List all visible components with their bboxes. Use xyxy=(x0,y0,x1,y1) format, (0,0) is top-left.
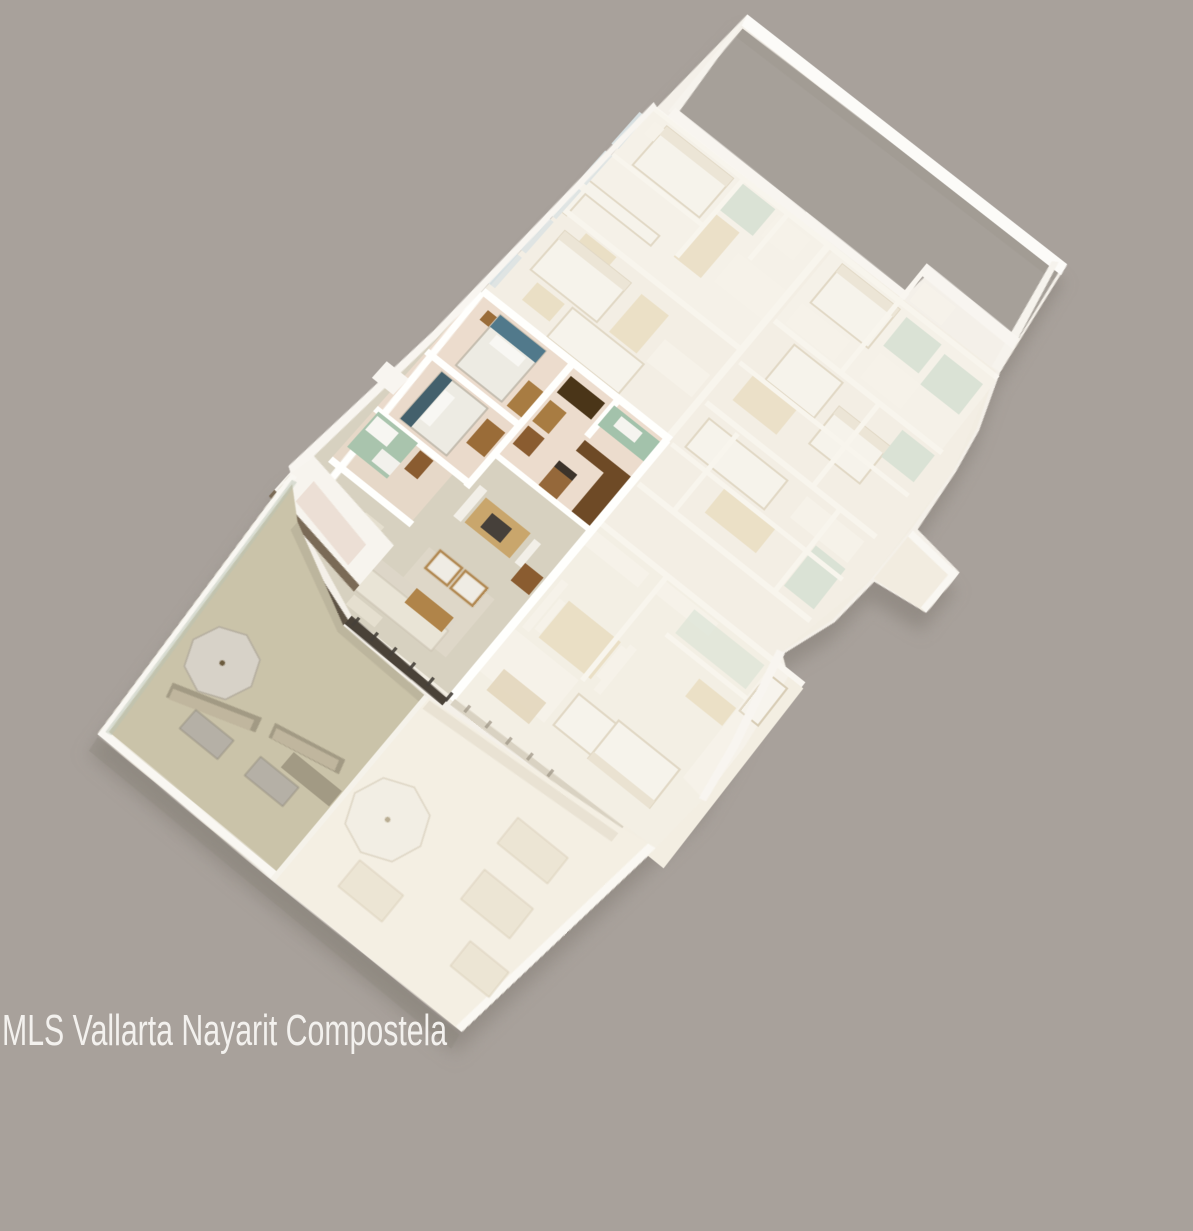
svg-text:MLS Vallarta Nayarit Compostel: MLS Vallarta Nayarit Compostela xyxy=(2,1007,447,1056)
